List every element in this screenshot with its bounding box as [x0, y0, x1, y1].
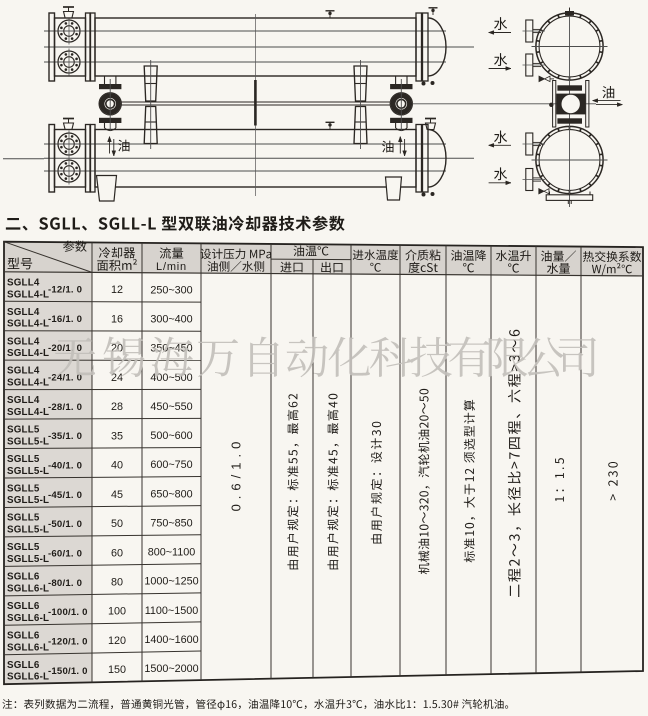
svg-text:1100~1500: 1100~1500: [145, 605, 199, 617]
svg-text:250~300: 250~300: [150, 284, 192, 296]
svg-text:300~400: 300~400: [150, 314, 192, 326]
svg-text:SGLL5-L: SGLL5-L: [7, 554, 49, 565]
svg-text:16: 16: [111, 313, 123, 325]
svg-text:SGLL5: SGLL5: [7, 454, 40, 465]
svg-text:-50/1. 0: -50/1. 0: [48, 519, 82, 530]
svg-text:600~750: 600~750: [150, 459, 192, 471]
svg-text:-120/1. 0: -120/1. 0: [48, 636, 88, 647]
svg-text:-60/1. 0: -60/1. 0: [48, 548, 82, 559]
svg-text:-100/1. 0: -100/1. 0: [48, 607, 88, 618]
svg-text:1500~2000: 1500~2000: [144, 663, 198, 675]
svg-text:12: 12: [111, 284, 123, 296]
svg-text:SGLL6: SGLL6: [7, 660, 40, 671]
svg-text:45: 45: [111, 489, 123, 501]
svg-text:SGLL5-L: SGLL5-L: [7, 466, 49, 477]
svg-text:SGLL4-L: SGLL4-L: [7, 319, 49, 330]
svg-text:SGLL4: SGLL4: [7, 277, 40, 288]
svg-text:SGLL4: SGLL4: [7, 395, 40, 406]
svg-text:L/min: L/min: [156, 261, 187, 273]
svg-text:-150/1. 0: -150/1. 0: [48, 666, 88, 677]
svg-text:SGLL4-L: SGLL4-L: [7, 378, 49, 389]
svg-text:-80/1. 0: -80/1. 0: [48, 578, 82, 589]
svg-text:-16/1. 0: -16/1. 0: [48, 314, 82, 325]
svg-text:-28/1. 0: -28/1. 0: [48, 402, 82, 413]
svg-text:-35/1. 0: -35/1. 0: [48, 431, 82, 442]
svg-text:SGLL6-L: SGLL6-L: [7, 672, 49, 683]
svg-text:450~550: 450~550: [150, 401, 192, 413]
svg-text:SGLL4: SGLL4: [7, 336, 40, 347]
svg-text:-45/1. 0: -45/1. 0: [48, 490, 82, 501]
svg-text:28: 28: [111, 401, 123, 413]
svg-text:SGLL6: SGLL6: [7, 601, 40, 612]
svg-text:SGLL4-L: SGLL4-L: [7, 348, 49, 359]
svg-text:SGLL5: SGLL5: [7, 513, 40, 524]
svg-text:SGLL5: SGLL5: [7, 483, 40, 494]
svg-text:150: 150: [108, 664, 126, 676]
svg-text:1000~1250: 1000~1250: [144, 576, 198, 588]
svg-text:120: 120: [108, 635, 126, 647]
svg-text:SGLL6-L: SGLL6-L: [7, 613, 49, 624]
svg-text:SGLL6: SGLL6: [7, 572, 40, 583]
svg-text:0.6/1.0: 0.6/1.0: [229, 437, 244, 512]
svg-text:SGLL4: SGLL4: [7, 307, 40, 318]
svg-text:500~600: 500~600: [150, 430, 192, 442]
svg-text:100: 100: [108, 606, 126, 618]
svg-text:1400~1600: 1400~1600: [144, 634, 198, 646]
svg-text:SGLL5-L: SGLL5-L: [7, 495, 49, 506]
svg-text:-20/1. 0: -20/1. 0: [48, 343, 82, 354]
svg-text:35: 35: [111, 430, 123, 442]
svg-text:SGLL6: SGLL6: [7, 630, 40, 641]
svg-text:SGLL5-L: SGLL5-L: [7, 436, 49, 447]
svg-text:SGLL4-L: SGLL4-L: [7, 407, 49, 418]
svg-text:800~1100: 800~1100: [148, 547, 196, 559]
svg-text:50: 50: [111, 518, 123, 530]
svg-text:-12/1. 0: -12/1. 0: [48, 284, 82, 295]
svg-text:60: 60: [111, 547, 123, 559]
svg-text:750~850: 750~850: [150, 517, 192, 529]
svg-text:SGLL4-L: SGLL4-L: [7, 289, 49, 300]
svg-text:SGLL4: SGLL4: [7, 366, 40, 377]
svg-text:650~800: 650~800: [150, 488, 192, 500]
svg-text:80: 80: [111, 577, 123, 589]
svg-text:-40/1. 0: -40/1. 0: [48, 460, 82, 471]
svg-text:SGLL5-L: SGLL5-L: [7, 525, 49, 536]
svg-text:SGLL5: SGLL5: [7, 424, 40, 435]
svg-text:SGLL5: SGLL5: [7, 542, 40, 553]
svg-text:SGLL6-L: SGLL6-L: [7, 642, 49, 653]
svg-text:40: 40: [111, 460, 123, 472]
svg-text:SGLL6-L: SGLL6-L: [7, 583, 49, 594]
